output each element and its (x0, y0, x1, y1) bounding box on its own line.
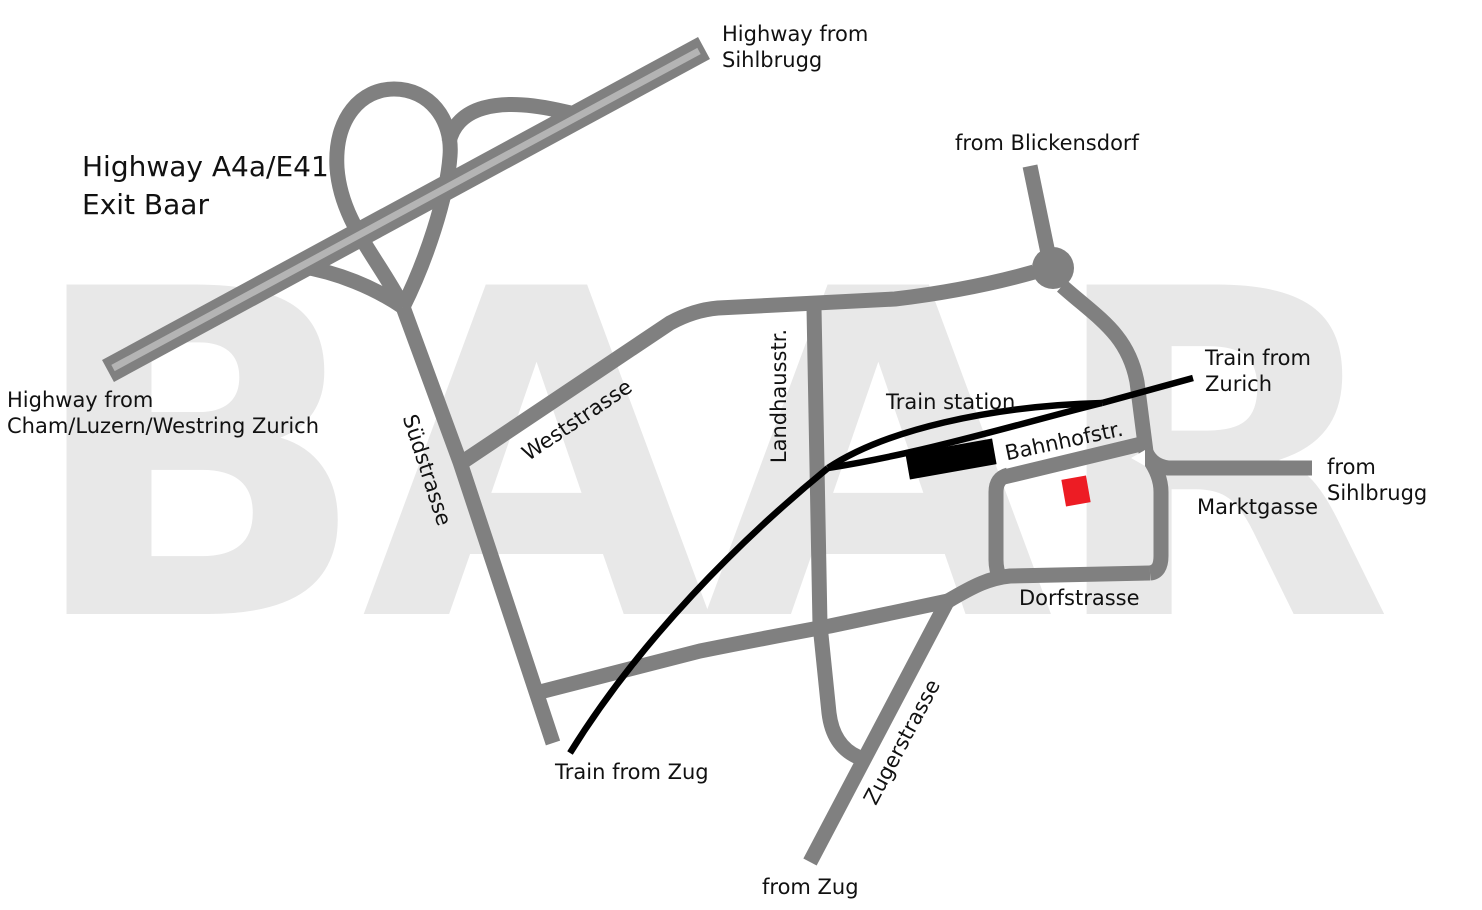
label-from-sihlbrugg: from Sihlbrugg (1327, 454, 1482, 506)
label-from-zug: from Zug (762, 874, 859, 900)
label-highway-from-sihlbrugg: Highway from Sihlbrugg (722, 21, 868, 73)
label-highway-exit-baar: Highway A4a/E41 Exit Baar (82, 148, 329, 224)
label-train-from-zurich: Train from Zurich (1205, 345, 1311, 397)
label-train-from-zug: Train from Zug (555, 759, 709, 785)
roundabout (1032, 247, 1074, 289)
label-landhausstrasse: Landhausstr. (766, 329, 792, 463)
label-highway-from-cham: Highway from Cham/Luzern/Westring Zurich (7, 387, 319, 439)
label-from-blickensdorf: from Blickensdorf (955, 130, 1139, 156)
map-canvas: BAAR (0, 0, 1482, 910)
label-marktgasse: Marktgasse (1197, 494, 1318, 520)
baar-access-map: BAAR (0, 0, 1482, 910)
watermark-text: BAAR (25, 194, 1385, 721)
destination-marker (1061, 476, 1090, 507)
label-dorfstrasse: Dorfstrasse (1019, 585, 1140, 611)
label-train-station: Train station (886, 389, 1015, 415)
